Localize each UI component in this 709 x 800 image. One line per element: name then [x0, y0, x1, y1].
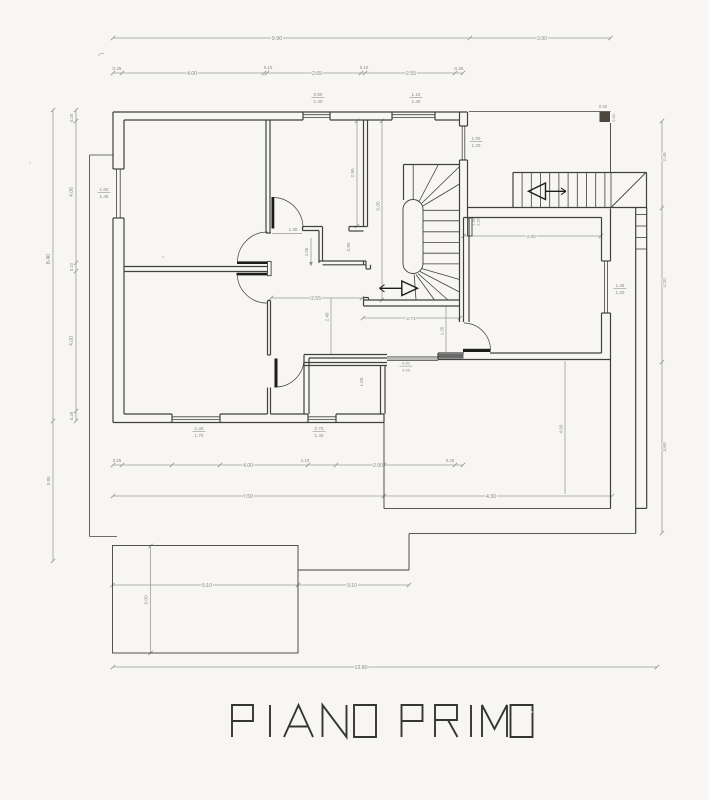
svg-text:13.80: 13.80: [355, 665, 368, 671]
svg-text:0.25: 0.25: [113, 458, 122, 463]
svg-text:2.40: 2.40: [325, 312, 330, 321]
svg-text:1.45: 1.45: [616, 283, 625, 288]
svg-text:9.90: 9.90: [272, 36, 283, 42]
svg-text:1.06: 1.06: [304, 247, 309, 256]
svg-text:1.40: 1.40: [315, 433, 324, 438]
svg-text:0.90: 0.90: [346, 242, 351, 251]
svg-text:5.10: 5.10: [202, 583, 212, 589]
svg-text:2.90: 2.90: [373, 463, 383, 469]
svg-text:2.55: 2.55: [311, 296, 321, 302]
svg-text:2.95: 2.95: [350, 168, 356, 178]
svg-text:0.70: 0.70: [315, 426, 324, 431]
svg-text:0.25: 0.25: [69, 411, 74, 420]
svg-text:4.00: 4.00: [69, 336, 75, 346]
svg-text:1.00: 1.00: [472, 136, 481, 141]
svg-text:3.90: 3.90: [537, 36, 547, 42]
svg-text:1.20: 1.20: [472, 143, 481, 148]
svg-text:1.10: 1.10: [301, 458, 310, 463]
svg-text:5.05: 5.05: [376, 201, 382, 211]
svg-text:3.60: 3.60: [662, 442, 668, 452]
svg-text:4.00: 4.00: [559, 424, 564, 433]
svg-text:1.60: 1.60: [100, 187, 109, 192]
svg-text:4.00: 4.00: [402, 361, 409, 365]
svg-text:0.30: 0.30: [611, 113, 616, 122]
svg-text:1.70: 1.70: [195, 433, 204, 438]
svg-text:1.20: 1.20: [616, 290, 625, 295]
svg-text:0.30: 0.30: [599, 104, 608, 109]
svg-text:2.55: 2.55: [406, 71, 416, 77]
svg-text:0.10: 0.10: [264, 65, 273, 70]
svg-text:1.10: 1.10: [412, 92, 421, 97]
svg-text:2.71: 2.71: [406, 316, 416, 322]
svg-text:3.10: 3.10: [347, 583, 357, 589]
svg-text:4.06: 4.06: [69, 187, 75, 197]
svg-text:0.25: 0.25: [113, 66, 122, 71]
svg-text:1.35: 1.35: [440, 326, 445, 335]
svg-text:1.30: 1.30: [289, 227, 298, 232]
svg-text:1.45: 1.45: [100, 194, 109, 199]
svg-text:0.25: 0.25: [455, 66, 464, 71]
svg-text:4.05: 4.05: [402, 369, 409, 373]
svg-text:1.40: 1.40: [195, 426, 204, 431]
svg-text:3.90: 3.90: [526, 234, 536, 240]
svg-text:7.50: 7.50: [243, 494, 253, 500]
svg-text:1.50: 1.50: [359, 377, 364, 386]
svg-text:3.00: 3.00: [144, 595, 150, 605]
svg-text:2.20: 2.20: [477, 218, 481, 225]
svg-text:4.20: 4.20: [662, 278, 668, 288]
svg-text:4.00: 4.00: [187, 71, 197, 77]
svg-text:0.25: 0.25: [69, 113, 74, 122]
svg-text:0.10: 0.10: [360, 65, 369, 70]
svg-text:2.45: 2.45: [662, 152, 668, 162]
svg-text:1.40: 1.40: [314, 99, 323, 104]
svg-text:2.65: 2.65: [312, 71, 322, 77]
svg-text:0.25: 0.25: [446, 458, 455, 463]
svg-text:4.00: 4.00: [243, 463, 253, 469]
svg-text:8.40: 8.40: [46, 254, 52, 264]
svg-text:4.30: 4.30: [486, 494, 496, 500]
svg-text:3.95: 3.95: [46, 476, 52, 486]
svg-text:0.10: 0.10: [69, 262, 74, 271]
svg-text:1.40: 1.40: [412, 99, 421, 104]
svg-text:1.30: 1.30: [472, 218, 476, 225]
svg-text:0.80: 0.80: [314, 92, 323, 97]
